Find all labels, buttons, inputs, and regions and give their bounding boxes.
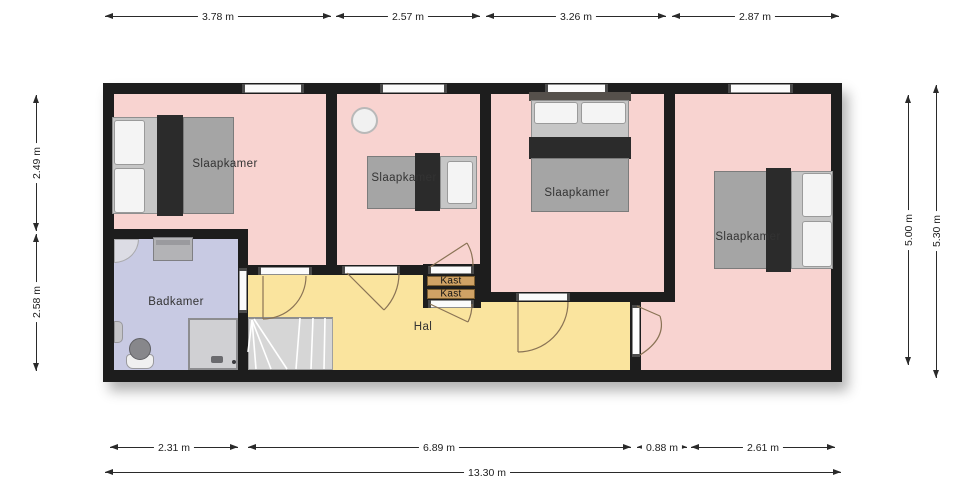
dimension-label: 2.61 m [743,442,783,454]
bed-bedroom4-pillow [802,221,832,267]
dimension-label: 3.26 m [556,11,596,23]
bed-bedroom4-pillow [802,173,832,217]
door-opening-bedroom3 [516,293,570,301]
bed-bedroom3-band [529,137,631,159]
bed-bedroom3-pillow [581,102,626,124]
window-bedroom1 [242,84,304,93]
bed-bedroom3-pillow [534,102,578,124]
ceiling-light [351,107,378,134]
wall-bedroom3-bedroom4 [664,94,675,300]
dimension-label: 3.78 m [198,11,238,23]
room-label-bedroom1: Slaapkamer [192,158,257,170]
shower-control [232,360,236,364]
room-label-hall: Hal [414,321,432,333]
room-hall-floor-right [480,302,630,370]
dimension-label: 2.31 m [154,442,194,454]
window-bedroom4 [728,84,793,93]
stairs [248,317,333,370]
door-opening-bedroom1 [258,267,312,275]
bed-bedroom1-pillow [114,168,145,213]
dimension-label: 2.58 m [31,282,43,322]
wall-bedroom1-bedroom2 [326,94,337,275]
door-opening-bathroom [239,268,247,313]
bed-bedroom1-band [157,115,183,216]
floor-plan: Slaapkamer Slaapkamer Slaapkamer Slaapka… [0,0,960,487]
dimension-label: 5.00 m [903,210,915,250]
door-opening-closet-bottom [428,300,474,308]
dimension-label: 5.30 m [931,211,943,251]
wall-exterior-bottom [103,370,842,382]
door-opening-closet-top [428,266,474,274]
room-label-bedroom2: Slaapkamer [371,172,436,184]
dimension-label: 2.87 m [735,11,775,23]
radiator [114,321,123,343]
room-label-closet-top: Kast [440,276,461,287]
dimension-label-total: 13.30 m [464,467,510,479]
room-label-bedroom3: Slaapkamer [544,187,609,199]
bed-bedroom1-pillow [114,120,145,165]
toilet [129,338,151,360]
wall-bedroom2-bedroom3 [480,94,491,302]
dimension-label: 0.88 m [642,442,682,454]
room-label-bedroom4: Slaapkamer [715,231,780,243]
bathroom-vanity [153,237,193,261]
room-label-bathroom: Badkamer [148,296,204,308]
bed-bedroom3-duvet [531,158,629,212]
dimension-label: 2.57 m [388,11,428,23]
dimension-label: 2.49 m [31,143,43,183]
room-label-closet-bottom: Kast [440,289,461,300]
dimension-label: 6.89 m [419,442,459,454]
bed-bedroom4-band [766,168,791,272]
bed-bedroom4-duvet [714,171,768,269]
door-opening-bedroom2 [342,266,400,274]
bed-bedroom2-pillow [447,161,473,204]
door-opening-bedroom4 [632,305,640,357]
window-bedroom2 [380,84,447,93]
shower-drain [211,356,223,363]
